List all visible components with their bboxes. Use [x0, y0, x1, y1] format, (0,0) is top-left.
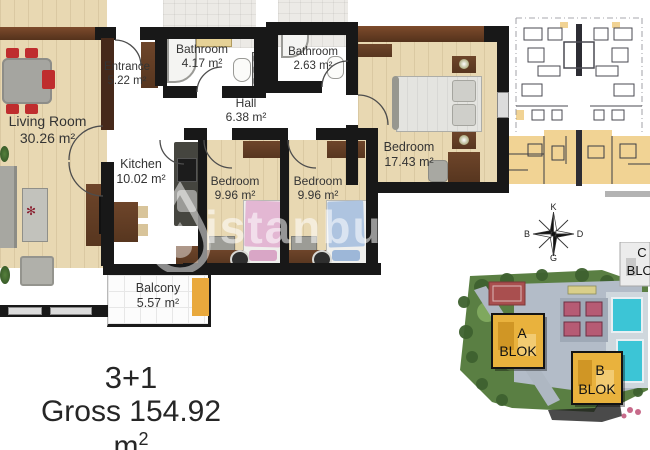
door-arcs [0, 0, 520, 340]
bathroom-small-label: Bathroom 2.63 m² [280, 46, 346, 73]
gross-area: Gross 154.92 m2 [25, 395, 237, 450]
bedroom-2-label: Bedroom 9.96 m² [286, 174, 350, 202]
balcony-label: Balcony 5.57 m² [126, 281, 190, 311]
key-plan [508, 14, 650, 196]
bathroom-large-label: Bathroom 4.17 m² [165, 42, 239, 70]
block-c: C BLOK [620, 242, 650, 286]
block-c-letter: C [637, 245, 646, 260]
living-room-label: Living Room 30.26 m² [0, 113, 95, 146]
block-b-letter: B [595, 362, 604, 378]
apartment-type: 3+1 [25, 362, 237, 395]
compass-west: B [524, 229, 530, 239]
watermark-drop-icon [145, 182, 215, 272]
key-plan-scale-bar [605, 191, 650, 197]
apartment-summary: 3+1 Gross 154.92 m2 [25, 362, 237, 450]
pool [612, 298, 642, 332]
block-c-word: BLOK [627, 263, 650, 278]
entrance-label: Entrance 5.22 m² [96, 61, 158, 88]
block-b-word: BLOK [578, 381, 616, 397]
floorplan-page: ✻ [0, 0, 650, 450]
hall-label: Hall 6.38 m² [212, 96, 280, 124]
compass-north: K [550, 202, 556, 212]
compass-east: D [577, 229, 584, 239]
block-a-word: BLOK [499, 343, 537, 359]
bedroom-master-label: Bedroom 17.43 m² [376, 140, 442, 170]
block-b: B BLOK [572, 352, 625, 407]
